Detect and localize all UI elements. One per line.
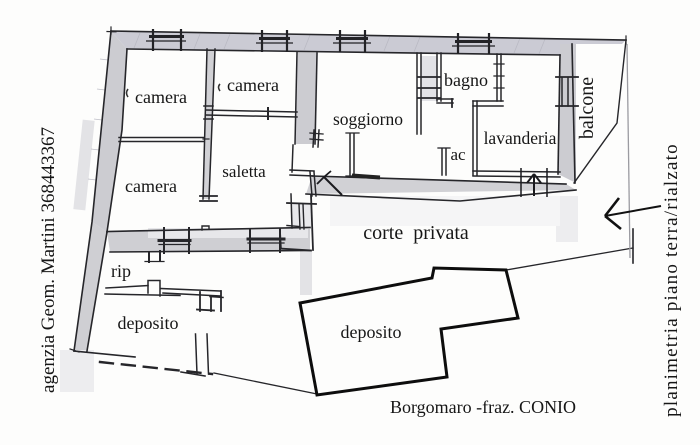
svg-text:bagno: bagno: [444, 70, 488, 90]
svg-text:camera: camera: [227, 75, 279, 95]
svg-text:deposito: deposito: [341, 322, 402, 342]
svg-text:Borgomaro -fraz. CONIO: Borgomaro -fraz. CONIO: [390, 397, 576, 417]
svg-text:soggiorno: soggiorno: [333, 109, 403, 129]
svg-text:agenzia Geom. Martini 36844336: agenzia Geom. Martini 368443367: [38, 127, 59, 393]
svg-text:planimetria piano terra/rialza: planimetria piano terra/rialzato: [661, 143, 682, 417]
svg-text:balcone: balcone: [576, 77, 598, 139]
svg-text:corte privata: corte privata: [363, 222, 469, 244]
svg-text:camera: camera: [125, 176, 177, 196]
svg-text:lavanderia: lavanderia: [484, 128, 557, 148]
svg-text:camera: camera: [135, 87, 187, 107]
svg-text:ac: ac: [450, 145, 466, 164]
svg-text:deposito: deposito: [118, 313, 179, 333]
svg-text:saletta: saletta: [222, 162, 266, 181]
svg-text:rip: rip: [111, 261, 131, 281]
